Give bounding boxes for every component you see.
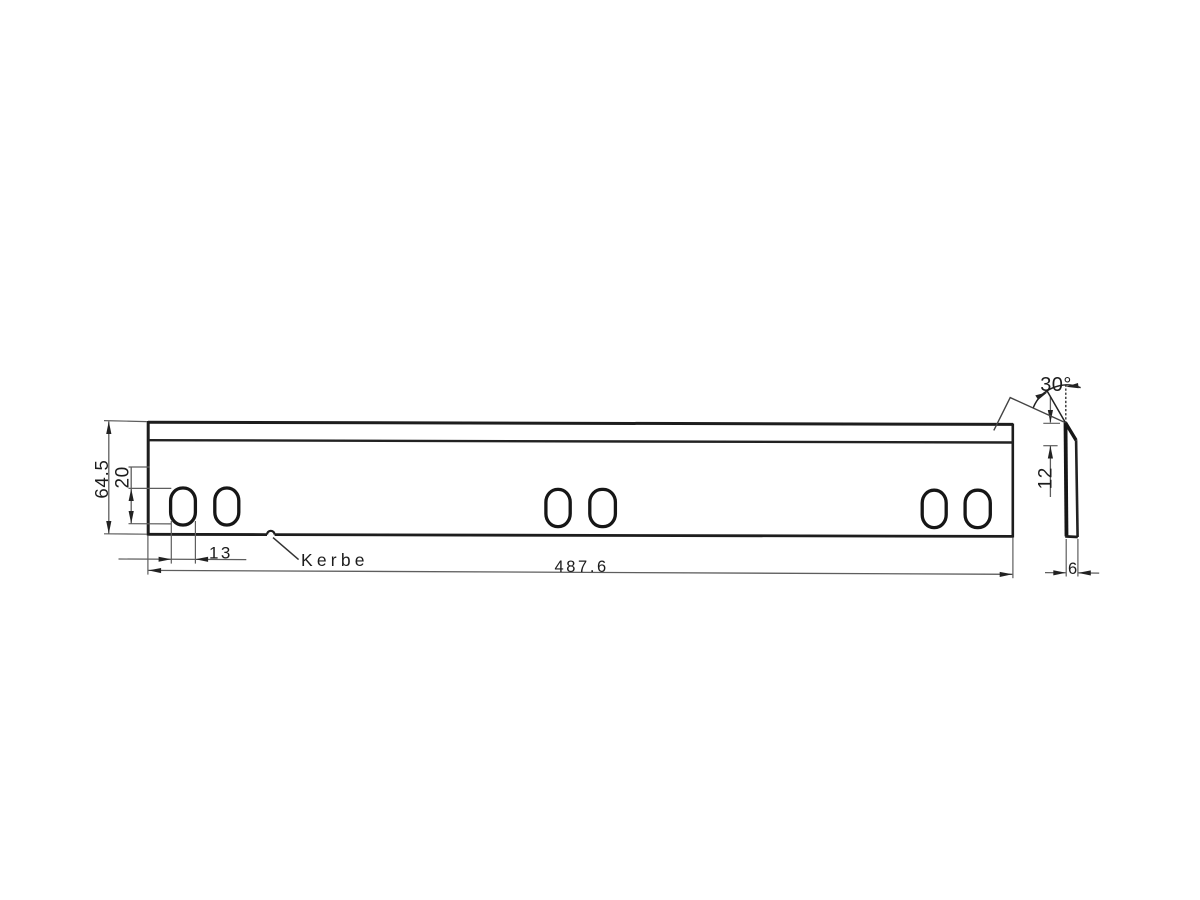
svg-text:12: 12 — [1036, 467, 1057, 489]
svg-text:64.5: 64.5 — [91, 459, 112, 498]
svg-text:30°: 30° — [1040, 374, 1072, 396]
svg-text:13: 13 — [209, 543, 233, 562]
svg-text:Kerbe: Kerbe — [301, 550, 369, 570]
svg-text:20: 20 — [112, 466, 133, 488]
svg-text:487.6: 487.6 — [555, 558, 609, 576]
svg-text:6: 6 — [1068, 560, 1077, 578]
